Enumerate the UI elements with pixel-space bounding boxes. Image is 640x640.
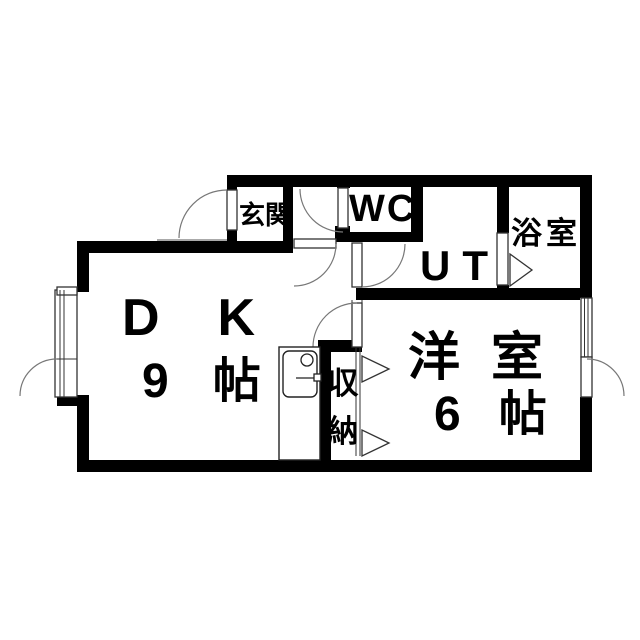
east-window — [581, 298, 592, 357]
west-window — [55, 290, 77, 397]
ut-door-leaf — [352, 243, 362, 287]
entrance-door-leaf — [227, 190, 237, 230]
western-room-label: 洋室 — [408, 329, 574, 387]
western-room-size-label: 6帖 — [434, 388, 585, 441]
bath-label: 浴室 — [511, 216, 581, 251]
wall-wc-south — [335, 232, 423, 242]
wall-right-upper — [580, 175, 592, 298]
wc-door-leaf — [338, 188, 348, 228]
dk-size-label: 9帖 — [142, 355, 305, 408]
wall-genkan-south — [77, 241, 293, 253]
ut-label: UT — [420, 242, 500, 289]
floor-plan-canvas: 玄関 WC UT 浴室 DK 9帖 洋室 6帖 収 納 — [0, 0, 640, 640]
wall-bath-west-top — [497, 175, 509, 233]
hall-dk-door-leaf — [294, 239, 336, 248]
closet-label-char-1: 収 — [328, 366, 359, 401]
wall-genkan-west-bottom — [227, 230, 237, 243]
closet-label-char-2: 納 — [328, 414, 359, 449]
wall-bottom — [77, 460, 592, 472]
wall-western-room-north — [356, 288, 580, 300]
floor-plan: 玄関 WC UT 浴室 DK 9帖 洋室 6帖 収 納 — [0, 0, 640, 640]
wall-wc-west-top — [337, 175, 350, 188]
dk-western-room-door-leaf — [352, 303, 362, 347]
wc-label: WC — [349, 188, 416, 230]
faucet-handle — [314, 374, 321, 381]
wall-top — [228, 175, 592, 187]
dk-label: DK — [122, 289, 313, 347]
genkan-label: 玄関 — [239, 200, 291, 230]
wall-genkan-west-top — [227, 175, 237, 190]
plan-background — [0, 0, 640, 640]
